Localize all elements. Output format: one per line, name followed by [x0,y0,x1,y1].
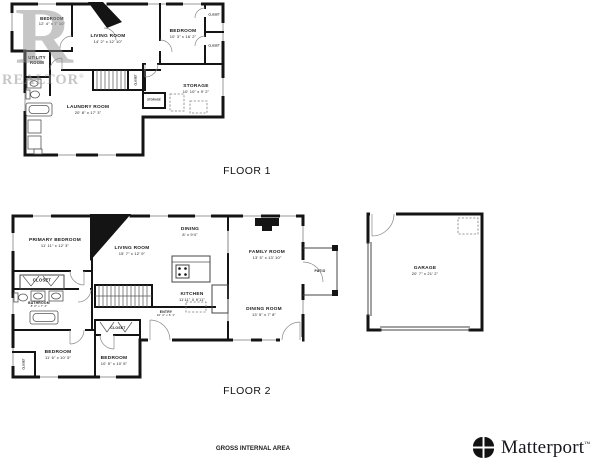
matterport-pinwheel-icon [472,436,495,459]
room-label-f2-dining: DINING 8' x 9'4" [181,227,199,237]
room-dims: 8' x 9'4" [181,232,199,237]
floor2-title: FLOOR 2 [223,385,271,397]
area-summary: GROSS INTERNAL AREA FLOOR 1 949 sq.ft. F… [155,430,351,464]
room-dims: 10' 4" x 6' 1" [157,314,176,318]
matterport-wordmark: Matterport™ [501,437,590,459]
room-dims: 11' 11" x 12' 3" [29,243,81,248]
room-label-f2-bathroom: BATHROOM 8' 0" x 7' 4" [28,301,50,309]
room-label-f2-kitchen: KITCHEN 11'11" X 9'11" [179,292,205,302]
registered-mark: ® [79,74,84,80]
room-dims: 20' 7" x 21' 2" [412,271,438,276]
room-label-f1-bedroom-right: BEDROOM 10' 3" x 16' 2" [170,29,197,39]
realtor-watermark: R REALTOR® [2,4,98,89]
room-label-f1-closet-stairs: CLOSET [134,74,137,85]
room-label-f2-bedroom-left: BEDROOM 11' 6" x 10' 5" [45,350,72,360]
room-dims: 15' 7" x 12' 9" [115,251,150,256]
room-dims: 8' 0" x 7' 4" [28,305,50,309]
room-dims: 10' 5" x 10' 5" [101,361,128,366]
room-label-f1-storage-small: STORAGE [147,98,161,101]
room-name: CLOSET [208,44,219,47]
room-label-f2-living: LIVING ROOM 15' 7" x 12' 9" [115,246,150,256]
realtor-wordmark: REALTOR® [2,72,98,89]
matterport-logo: Matterport™ [472,436,590,459]
room-name: CLOSET [208,13,219,16]
room-label-f2-closet-left: CLOSET [22,358,25,369]
area-summary-line: GROSS INTERNAL AREA [155,445,351,452]
room-dims: 11'11" X 9'11" [179,297,205,302]
room-name: CLOSET [134,74,137,85]
room-label-f2-closet-hall: CLOSET [110,326,125,330]
room-dims: 13' 5" x 7' 8" [246,312,282,317]
room-label-garage: GARAGE 20' 7" x 21' 2" [412,266,438,276]
room-label-f1-closet-a: CLOSET [208,13,219,16]
trademark-mark: ™ [584,441,590,447]
room-label-f1-closet-b: CLOSET [208,44,219,47]
realtor-r-logo: R [15,4,98,70]
floor1-title: FLOOR 1 [223,165,271,177]
room-label-f2-entry: ENTRY 10' 4" x 6' 1" [157,310,176,318]
room-label-f2-primary-bedroom: PRIMARY BEDROOM 11' 11" x 12' 3" [29,238,81,248]
room-name: CLOSET [22,358,25,369]
room-dims: 10' 3" x 16' 2" [170,34,197,39]
room-label-f2-bedroom-center: BEDROOM 10' 5" x 10' 5" [101,356,128,366]
room-dims: 10' 10" x 9' 2" [183,89,209,94]
room-label-f2-dining-room: DINING ROOM 13' 5" x 7' 8" [246,307,282,317]
room-label-f1-laundry: LAUNDRY ROOM 20' 8" x 17' 3" [67,105,109,115]
room-dims: 13' 5" x 13' 10" [249,255,285,260]
room-label-f2-patio: PATIO [314,269,325,273]
room-name: PATIO [314,269,325,273]
room-label-f1-storage: STORAGE 10' 10" x 9' 2" [183,84,209,94]
room-label-f2-family: FAMILY ROOM 13' 5" x 13' 10" [249,250,285,260]
room-name: STORAGE [147,98,161,101]
room-name: CLOSET [33,279,51,284]
room-name: CLOSET [110,326,125,330]
room-label-f2-closet-primary: CLOSET [33,279,51,284]
room-dims: 20' 8" x 17' 3" [67,110,109,115]
floorplan-canvas: BEDROOM 12' 4" x 7' 10" UTILITY ROOM LIV… [0,0,600,464]
room-dims: 11' 6" x 10' 5" [45,355,72,360]
